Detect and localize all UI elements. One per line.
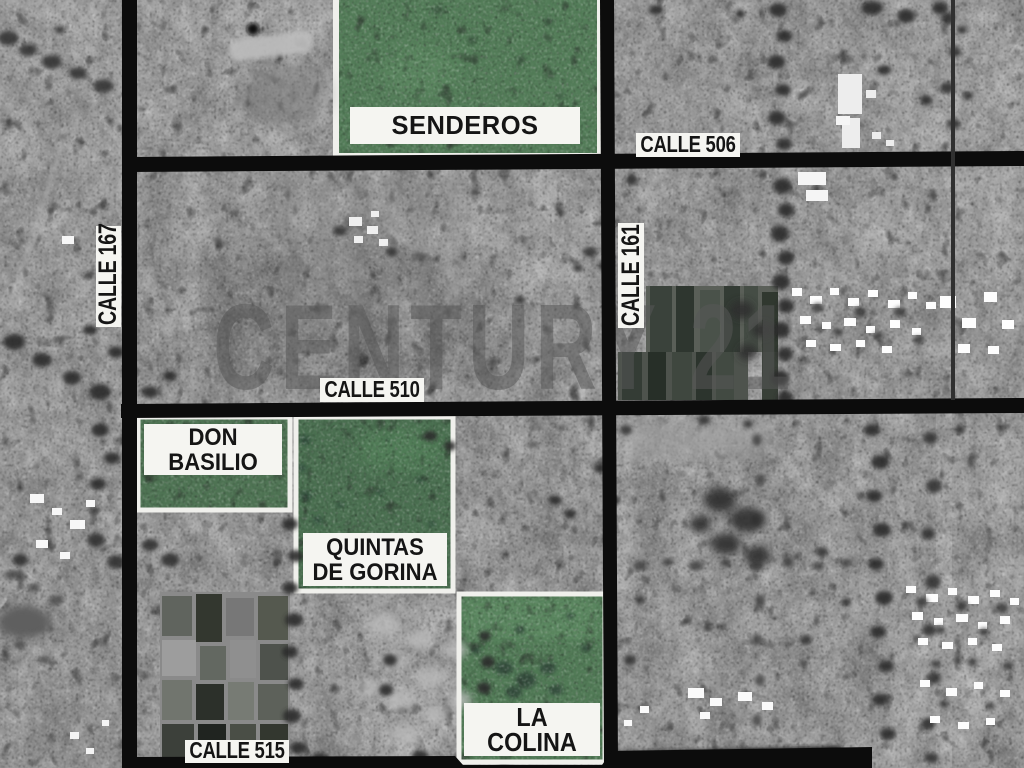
svg-text:CALLE 161: CALLE 161 (617, 224, 645, 326)
svg-text:DON: DON (188, 423, 237, 450)
svg-text:DE GORINA: DE GORINA (312, 558, 437, 585)
svg-text:CALLE 515: CALLE 515 (189, 738, 285, 763)
svg-text:SENDEROS: SENDEROS (391, 112, 538, 140)
svg-text:CALLE 510: CALLE 510 (324, 377, 419, 402)
svg-text:BASILIO: BASILIO (168, 448, 258, 475)
svg-text:CALLE 506: CALLE 506 (640, 132, 735, 157)
svg-text:COLINA: COLINA (487, 729, 577, 757)
svg-text:CALLE 167: CALLE 167 (94, 223, 122, 325)
svg-text:CENTURY 21: CENTURY 21 (213, 280, 796, 416)
svg-text:QUINTAS: QUINTAS (326, 533, 424, 560)
